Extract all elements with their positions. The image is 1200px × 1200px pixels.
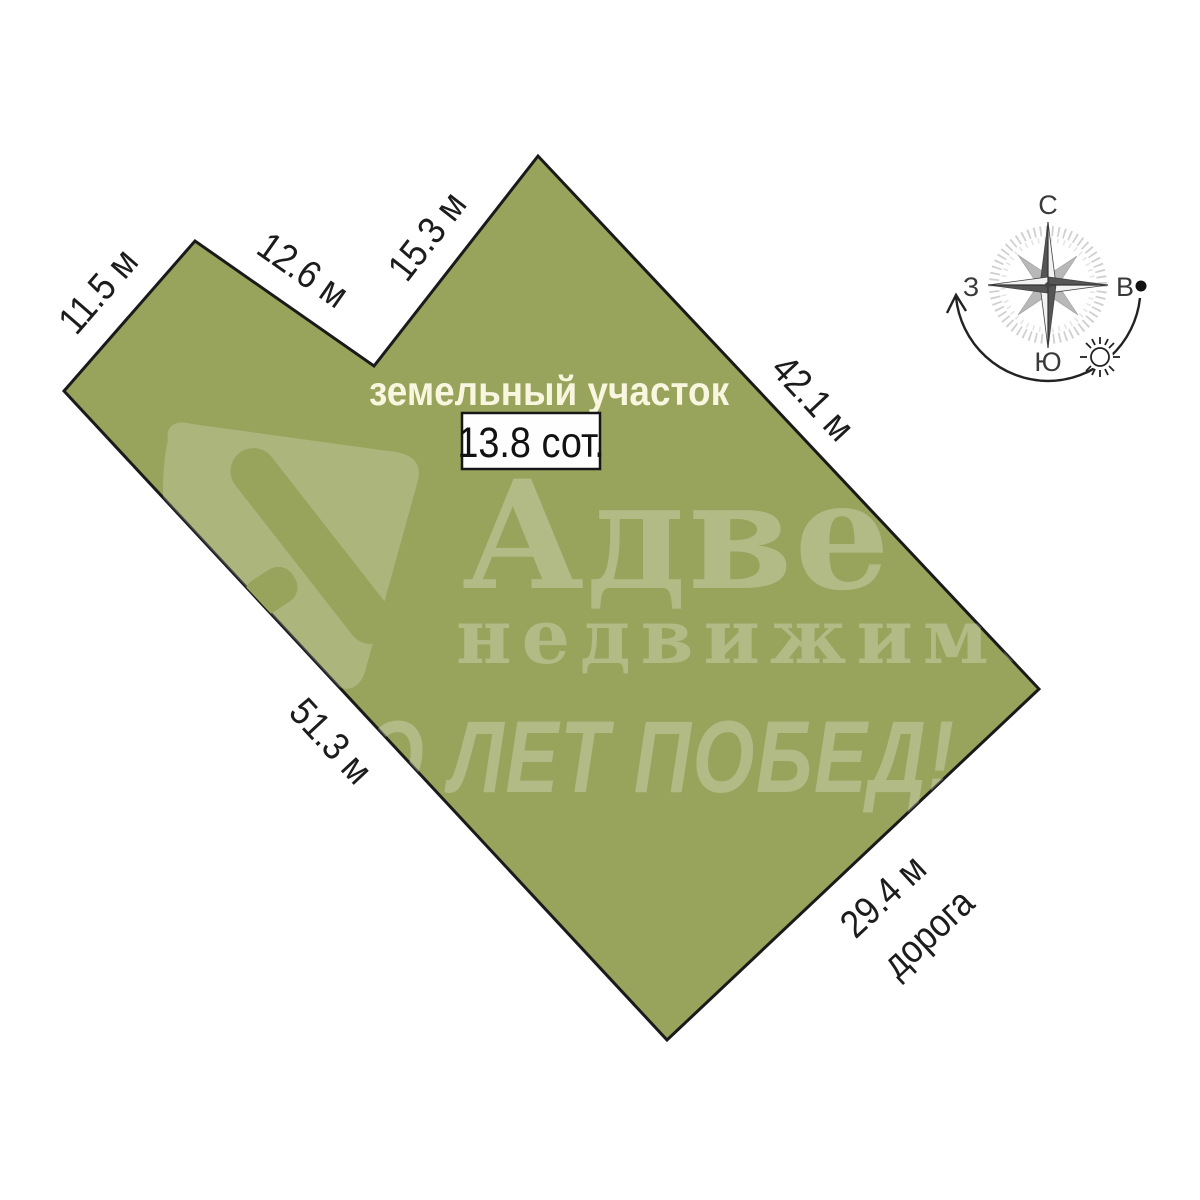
- area-badge: 13.8 сот.: [457, 413, 604, 469]
- sun-icon: [1080, 337, 1120, 377]
- watermark-slogan-text: О ЛЕТ ПОБЕД!: [362, 701, 956, 815]
- land-plot-diagram: Адве недвижимос О ЛЕТ ПОБЕД! земельный у…: [0, 0, 1200, 1200]
- compass-south-label: Ю: [1034, 347, 1061, 377]
- diagram-svg: Адве недвижимос О ЛЕТ ПОБЕД! земельный у…: [0, 0, 1200, 1200]
- area-value: 13.8 сот.: [457, 418, 604, 467]
- compass-east-label: В: [1116, 272, 1134, 302]
- compass-west-label: З: [963, 272, 979, 302]
- compass-north-label: С: [1038, 190, 1058, 220]
- sun-path-start-dot: [1136, 281, 1147, 292]
- plot-title-label: земельный участок: [369, 369, 730, 414]
